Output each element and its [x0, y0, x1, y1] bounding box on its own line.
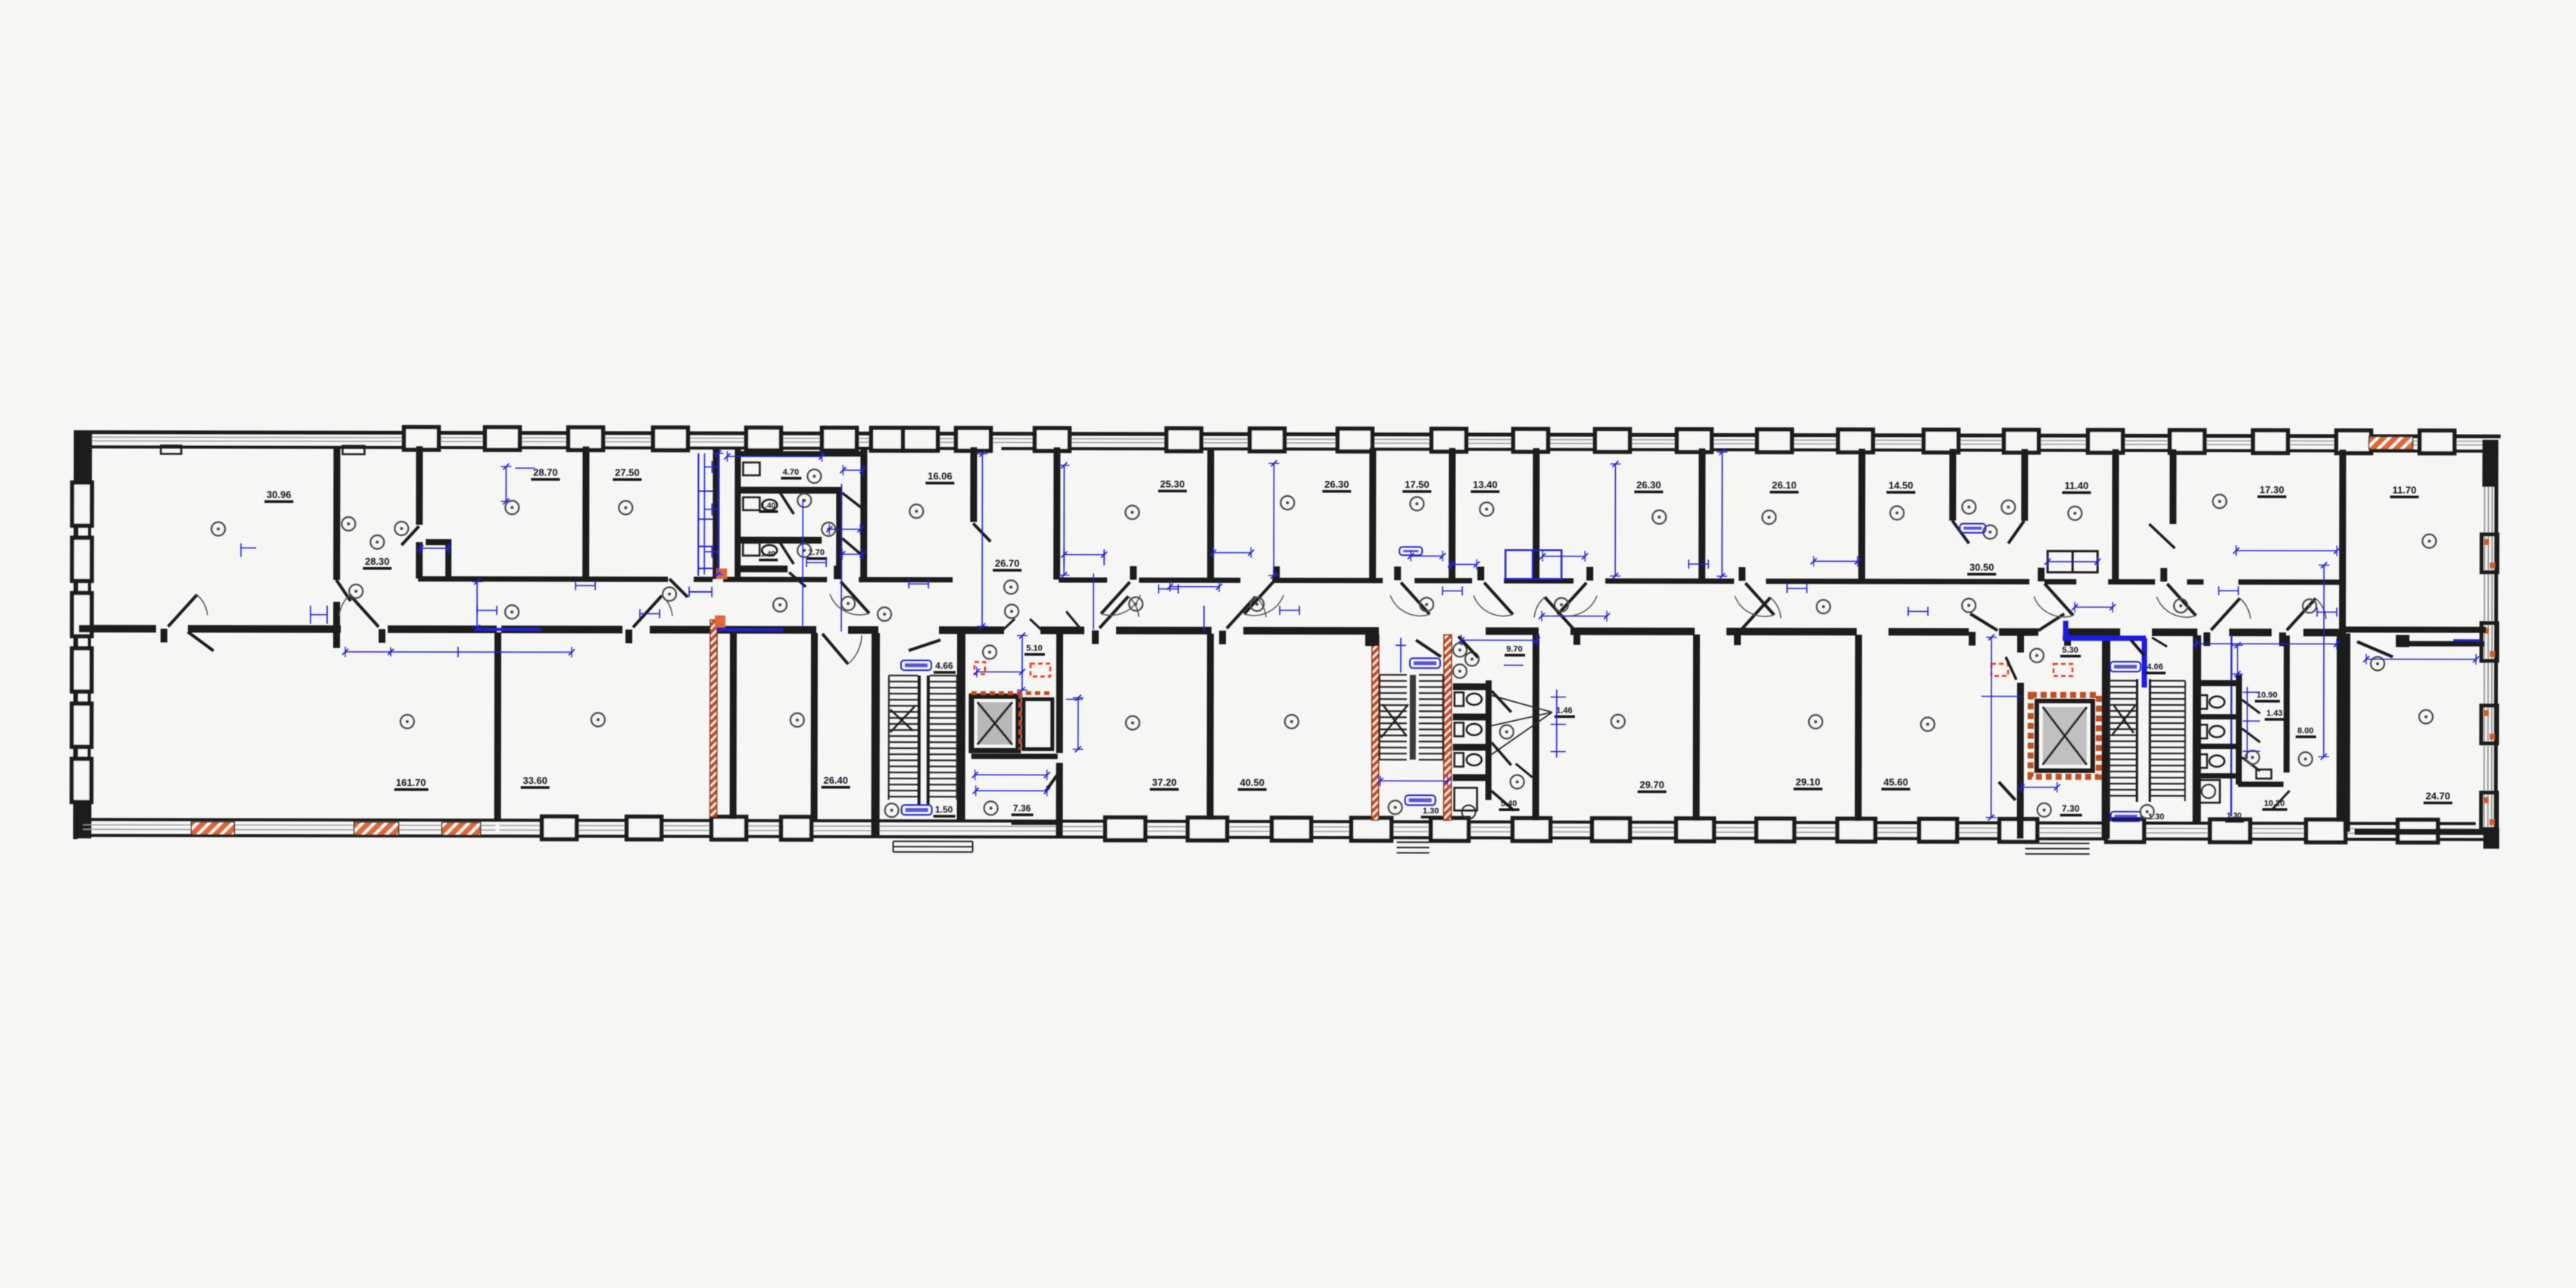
svg-text:5.10: 5.10 — [1026, 644, 1042, 653]
svg-text:17.50: 17.50 — [1405, 479, 1430, 490]
svg-text:33.60: 33.60 — [522, 775, 547, 786]
svg-text:9.70: 9.70 — [1506, 645, 1522, 654]
svg-text:8.00: 8.00 — [2297, 726, 2313, 735]
svg-text:5.30: 5.30 — [2062, 646, 2078, 655]
svg-text:17.30: 17.30 — [2259, 484, 2284, 495]
svg-text:37.20: 37.20 — [1152, 777, 1177, 788]
svg-text:1.50: 1.50 — [935, 804, 953, 815]
svg-text:1.40: 1.40 — [760, 550, 775, 559]
svg-text:14.50: 14.50 — [1888, 479, 1913, 491]
svg-text:26.30: 26.30 — [1636, 479, 1661, 491]
svg-text:28.70: 28.70 — [533, 466, 558, 478]
svg-text:1.46: 1.46 — [1556, 706, 1572, 716]
svg-text:27.50: 27.50 — [615, 466, 640, 478]
svg-text:4.06: 4.06 — [2147, 663, 2163, 672]
svg-text:5.40: 5.40 — [1501, 799, 1517, 808]
svg-text:11.40: 11.40 — [2064, 480, 2088, 491]
svg-text:1.40: 1.40 — [761, 502, 776, 510]
svg-text:30.50: 30.50 — [1969, 562, 1994, 573]
svg-text:28.30: 28.30 — [365, 556, 390, 567]
svg-text:161.70: 161.70 — [396, 777, 426, 788]
svg-text:16.06: 16.06 — [928, 470, 953, 482]
svg-text:40.50: 40.50 — [1240, 777, 1265, 788]
svg-text:26.70: 26.70 — [995, 557, 1020, 569]
svg-text:25.30: 25.30 — [1160, 479, 1185, 490]
svg-text:26.40: 26.40 — [823, 775, 848, 786]
svg-text:29.70: 29.70 — [1639, 779, 1664, 791]
svg-text:7.36: 7.36 — [1013, 803, 1031, 813]
svg-text:29.10: 29.10 — [1795, 776, 1820, 787]
svg-text:1.30: 1.30 — [2227, 812, 2242, 820]
svg-text:45.60: 45.60 — [1883, 776, 1908, 787]
svg-text:1.43: 1.43 — [2266, 709, 2282, 718]
svg-text:4.66: 4.66 — [935, 660, 953, 671]
svg-text:11.70: 11.70 — [2392, 485, 2416, 496]
svg-text:7.30: 7.30 — [2062, 803, 2080, 814]
svg-text:30.96: 30.96 — [267, 489, 292, 501]
svg-text:24.70: 24.70 — [2425, 791, 2450, 802]
svg-text:26.30: 26.30 — [1324, 479, 1349, 490]
svg-text:26.10: 26.10 — [1772, 479, 1797, 491]
svg-text:13.40: 13.40 — [1473, 479, 1498, 490]
svg-text:1.30: 1.30 — [1423, 806, 1439, 816]
svg-text:4.70: 4.70 — [783, 468, 799, 477]
